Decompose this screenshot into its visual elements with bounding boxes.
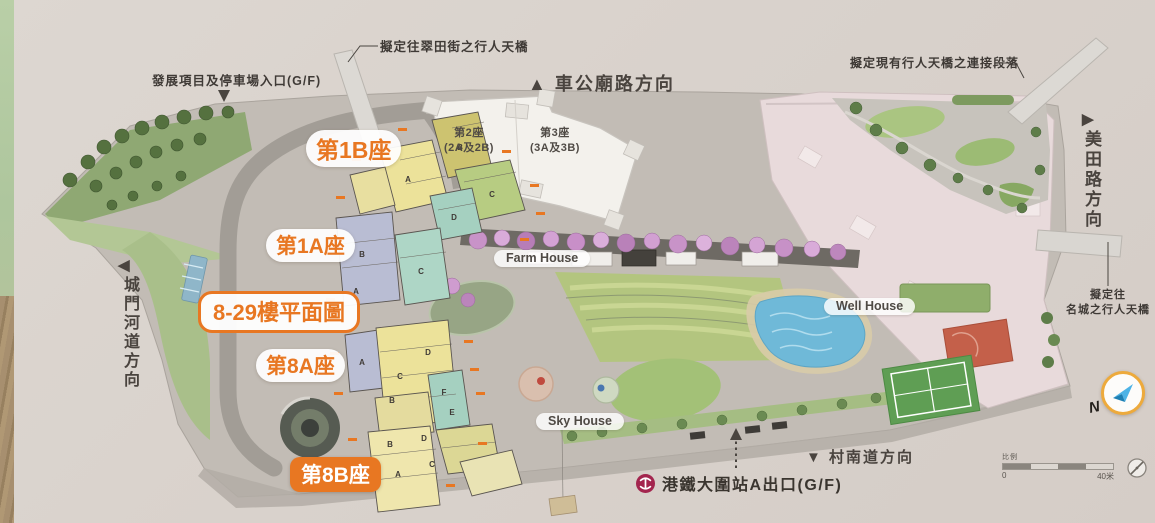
- direction-shing-mun-river: 城門河道方向: [117, 276, 141, 390]
- label-tower-1a[interactable]: 第1A座: [266, 229, 355, 262]
- svg-text:A: A: [405, 175, 411, 184]
- site-plan-page: A B C D B A C A D C B F E B D A C: [0, 0, 1155, 523]
- svg-text:A: A: [359, 358, 365, 367]
- note-mtr-exit: 港鐵大圍站A出口(G/F): [636, 471, 842, 495]
- svg-text:B: B: [389, 396, 395, 405]
- note-bridge-festival-city: 擬定往 名城之行人天橋: [1062, 288, 1154, 318]
- drawing-compass-icon: [1124, 455, 1150, 486]
- scale-segments: [1002, 463, 1114, 470]
- scale-caption: 比例: [1002, 452, 1114, 462]
- label-tower-8b[interactable]: 第8B座: [290, 457, 381, 492]
- mtr-logo-icon: [636, 474, 655, 493]
- label-tower-1b[interactable]: 第1B座: [306, 130, 401, 167]
- direction-mei-tin-road: 美田路方向: [1079, 130, 1104, 230]
- svg-text:D: D: [451, 213, 457, 222]
- svg-text:B: B: [359, 250, 365, 259]
- svg-text:C: C: [429, 460, 435, 469]
- label-tower-3: 第3座(3A及3B): [530, 126, 580, 156]
- direction-tsuen-nam-road: ▼ 村南道方向: [806, 446, 914, 467]
- left-arrow-icon: ◀: [118, 256, 130, 274]
- label-sky-house: Sky House: [536, 413, 624, 430]
- edge-strip-wood: [0, 296, 14, 523]
- label-tower-2: 第2座(2A及2B): [444, 126, 494, 156]
- label-well-house: Well House: [824, 298, 915, 315]
- svg-text:C: C: [489, 190, 495, 199]
- svg-text:E: E: [449, 408, 455, 417]
- circular-ramp: [280, 398, 340, 458]
- down-arrow-icon: ▼: [806, 449, 823, 466]
- svg-text:D: D: [421, 434, 427, 443]
- label-farm-house: Farm House: [494, 250, 590, 267]
- note-existing-bridge: 擬定現有行人天橋之連接段落: [850, 54, 1019, 71]
- note-bridge-tsui-tin: 擬定往翠田街之行人天橋: [380, 36, 529, 55]
- compass-icon: [1101, 371, 1145, 415]
- decorative-edge-strip: [0, 0, 14, 523]
- playground: [519, 367, 553, 401]
- right-arrow-icon: ▶: [1082, 110, 1094, 128]
- inset-detail: [549, 495, 577, 515]
- scale-max: 40米: [1097, 471, 1114, 482]
- svg-text:F: F: [442, 388, 447, 397]
- svg-text:C: C: [418, 267, 424, 276]
- edge-strip-green: [0, 0, 14, 296]
- note-dev-entrance: 發展項目及停車場入口(G/F): [152, 70, 321, 89]
- svg-text:D: D: [425, 348, 431, 357]
- label-floor-plan-range[interactable]: 8-29樓平面圖: [198, 291, 360, 333]
- svg-text:C: C: [397, 372, 403, 381]
- direction-che-kung-miu-road: ▲ 車公廟路方向: [528, 70, 675, 96]
- entrance-arrowhead: [218, 90, 230, 102]
- scale-bar: 比例 0 40米: [1002, 452, 1114, 482]
- label-tower-8a[interactable]: 第8A座: [256, 349, 345, 382]
- scale-zero: 0: [1002, 471, 1006, 482]
- svg-text:A: A: [395, 470, 401, 479]
- svg-text:B: B: [387, 440, 393, 449]
- up-arrow-icon: ▲: [528, 74, 548, 94]
